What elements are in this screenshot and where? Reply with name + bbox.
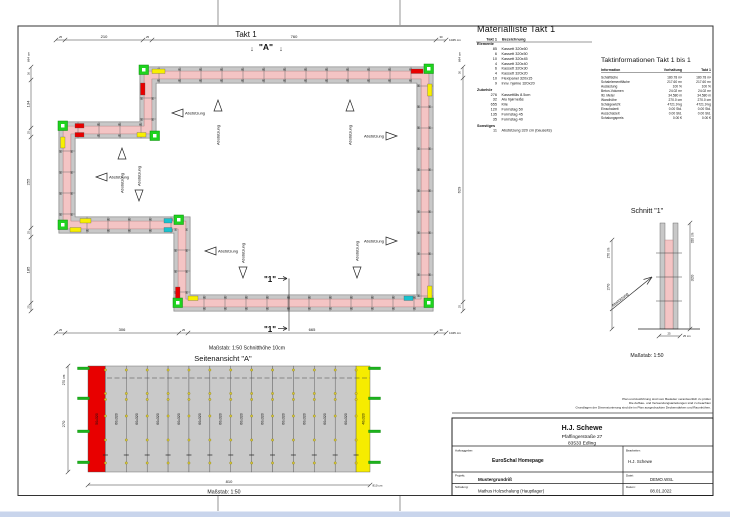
- wedge-lock-dot: [167, 439, 169, 441]
- panel-width-label: 60: [350, 307, 354, 311]
- material-qty: 6: [495, 67, 497, 71]
- corner-element-notch: [61, 124, 65, 128]
- panel-width-label: 60: [220, 67, 224, 71]
- takt-info-vorhaltung-value: 270.0 cm: [668, 98, 682, 102]
- wedge-lock-dot: [250, 398, 252, 400]
- panel-width-label: 60: [203, 295, 207, 299]
- panel-width-label: 60: [139, 97, 143, 101]
- wedge-lock-dot: [146, 415, 148, 417]
- wedge-lock-dot: [292, 398, 294, 400]
- side-view-scale: Maßstab: 1:50: [207, 490, 240, 496]
- tie-rod: [78, 430, 90, 433]
- dim-label: 25: [458, 305, 462, 309]
- panel-width-label: 60: [173, 270, 177, 274]
- panel-width-label: 60: [224, 295, 228, 299]
- panel-width-label: 60: [185, 270, 189, 274]
- material-qty: 120: [491, 108, 497, 112]
- material-item-label: Kassett 320x20: [502, 72, 528, 76]
- panel-width-label: 60: [428, 126, 432, 130]
- support-arrow-left: [172, 109, 183, 117]
- panel-width-label: 60: [185, 291, 189, 295]
- panel-width-label: 60: [346, 67, 350, 71]
- field-value-schalung: Mathus Holzschalung (Hauptlager): [478, 488, 545, 493]
- wedge-lock-dot: [250, 439, 252, 441]
- takt-info-label: lfd. Meter: [601, 93, 616, 97]
- panel-width-label: 60: [58, 150, 62, 154]
- wedge-lock-dot: [271, 369, 273, 371]
- wedge-lock-dot: [230, 398, 232, 400]
- wedge-lock-dot: [146, 439, 148, 441]
- field-label-projekt: Projekt:: [455, 474, 465, 478]
- material-item-label: Kassett 320x40: [502, 62, 528, 66]
- material-item-label: Kassettlås 8.5cm: [502, 93, 531, 97]
- panel-width-label: 60: [283, 67, 287, 71]
- panel-width-label: 60: [308, 295, 312, 299]
- material-col-bezeichnung: Bezeichnung: [502, 38, 526, 42]
- takt-info-vorhaltung-value: 34.580 m: [668, 93, 682, 97]
- company-address-street: Pfaffingerstraße 27: [562, 434, 603, 440]
- material-qty: 135: [491, 112, 497, 116]
- wedge-lock-dot: [313, 398, 315, 400]
- wedge-lock-dot: [209, 398, 211, 400]
- panel-width-label: 60: [58, 213, 62, 217]
- wedge-lock-dot: [209, 369, 211, 371]
- support-label: Abstützung: [610, 291, 629, 307]
- side-panel-label: 60x320: [302, 413, 306, 425]
- panel-width-label: 60: [178, 67, 182, 71]
- material-qty: 10: [493, 77, 497, 81]
- panel-width-label: 60: [350, 295, 354, 299]
- dim-label: 760: [291, 34, 298, 39]
- wedge-lock-dot: [292, 462, 294, 464]
- panel-width-label: 60: [416, 126, 420, 130]
- panel-width-label: 60: [245, 295, 249, 299]
- wedge-lock-dot: [188, 398, 190, 400]
- section-marker-label: "1": [264, 325, 276, 334]
- material-item-label: Kassett 320x60: [502, 47, 528, 51]
- dim-label: 684 cm: [458, 52, 462, 63]
- corner-element-notch: [142, 68, 146, 72]
- support-arrow: [610, 277, 652, 311]
- panel-width-label: 60: [86, 229, 90, 233]
- takt-info-table: Taktinformationen Takt 1 bis 1 Informati…: [601, 57, 712, 120]
- takt-info-label: Schalfläche: [601, 75, 618, 79]
- tie-rod: [78, 367, 90, 370]
- wedge-lock-dot: [230, 415, 232, 417]
- title-block: H.J. Schewe Pfaffingerstraße 27 83533 Ed…: [452, 413, 713, 496]
- accent-panel: [411, 69, 423, 74]
- dim-label: 25: [27, 231, 31, 235]
- dim-label: 270: [61, 420, 66, 427]
- panel-width-label: 60: [58, 192, 62, 196]
- concrete-wall-section: [665, 240, 673, 329]
- plan-scale-note: Maßstab: 1:50 Schnitthöhe 10cm: [209, 346, 285, 352]
- support-label: Abstützung: [355, 241, 360, 261]
- panel-width-label: 60: [185, 249, 189, 253]
- panel-width-label: 60: [428, 168, 432, 172]
- wedge-lock-dot: [334, 369, 336, 371]
- support-arrow-up: [214, 100, 222, 111]
- material-qty: 276: [491, 93, 497, 97]
- material-qty: 4: [495, 72, 497, 76]
- wedge-lock-dot: [188, 462, 190, 464]
- down-arrow-icon: ↓: [279, 46, 283, 53]
- wedge-lock-dot: [209, 439, 211, 441]
- panel-width-label: 60: [416, 147, 420, 151]
- field-label-bearbeiter: Bearbeiter:: [626, 449, 641, 453]
- side-panel-label: 60x320: [281, 413, 285, 425]
- dim-label: 270 cm: [62, 374, 66, 385]
- wedge-lock-dot: [230, 462, 232, 464]
- wedge-lock-dot: [146, 369, 148, 371]
- panel-width-label: 60: [149, 217, 153, 221]
- accent-panel: [152, 69, 165, 74]
- takt-info-col-vorhaltung: Vorhaltung: [664, 68, 682, 72]
- wedge-lock-dot: [209, 392, 211, 394]
- wedge-lock-dot: [292, 392, 294, 394]
- wedge-lock-dot: [334, 415, 336, 417]
- corner-element-notch: [177, 218, 181, 222]
- panel-width-label: 60: [325, 67, 329, 71]
- takt-info-label: Schalelementfläche: [601, 80, 630, 84]
- takt-info-label: Beton-Volumen: [601, 89, 624, 93]
- takt-info-label: Schalgewicht: [601, 102, 621, 106]
- takt-info-vorhaltung-value: 180.78 m²: [667, 75, 683, 79]
- field-label-datum: Datum:: [626, 485, 636, 489]
- wedge-lock-dot: [167, 369, 169, 371]
- panel-width-label: 60: [308, 307, 312, 311]
- euroschal-drawing-sheet: Takt 1 ↓ "A" ↓ 6060606060606060606060606…: [0, 0, 730, 517]
- panel-width-label: 60: [118, 122, 122, 126]
- panel-width-label: 60: [139, 122, 143, 126]
- wedge-lock-dot: [271, 392, 273, 394]
- takt-info-vorhaltung-value: 0.00 €: [673, 116, 682, 120]
- dim-label: 25: [59, 35, 63, 39]
- material-qty: 35: [493, 117, 497, 121]
- takt-info-vorhaltung-value: 4721.9 kg: [668, 102, 683, 106]
- panel-width-label: 60: [151, 118, 155, 122]
- panel-width-label: 60: [416, 105, 420, 109]
- side-view-title: Seitenansicht "A": [194, 354, 252, 363]
- material-qty: 655: [491, 103, 497, 107]
- wedge-lock-dot: [334, 462, 336, 464]
- takt-info-title: Taktinformationen Takt 1 bis 1: [601, 57, 691, 64]
- takt-info-takt1-value: 4721.9 kg: [697, 102, 712, 106]
- wedge-lock-dot: [355, 369, 357, 371]
- material-qty: 6: [495, 52, 497, 56]
- material-section-heading: Sonstiges: [477, 124, 495, 128]
- schnitt-scale: Maßstab: 1:50: [630, 353, 663, 359]
- material-item-label: Kassett 320x45: [502, 57, 528, 61]
- section-marker-label: "1": [264, 275, 276, 284]
- panel-width-label: 60: [97, 134, 101, 138]
- panel-width-label: 60: [428, 210, 432, 214]
- panel-width-label: 60: [428, 252, 432, 256]
- dim-label: 665: [309, 327, 316, 332]
- wedge-lock-dot: [292, 439, 294, 441]
- panel-width-label: 60: [128, 217, 132, 221]
- panel-width-label: 60: [416, 210, 420, 214]
- material-qty: 85: [493, 47, 497, 51]
- panel-width-label: 60: [220, 79, 224, 83]
- panel-width-label: 60: [241, 79, 245, 83]
- support-label: Abstützung: [109, 175, 129, 180]
- dim-label: 25 cm: [683, 334, 691, 338]
- panel-width-label: 60: [428, 273, 432, 277]
- panel-width-label: 60: [416, 231, 420, 235]
- wedge-lock-dot: [271, 398, 273, 400]
- takt-info-takt1-value: 0.00 Std.: [698, 107, 711, 111]
- wedge-lock-dot: [334, 392, 336, 394]
- wedge-lock-dot: [146, 462, 148, 464]
- field-value-bearbeiter: H.J. Schewe: [628, 459, 653, 464]
- takt-info-vorhaltung-value: 100 %: [673, 84, 682, 88]
- panel-width-label: 60: [304, 67, 308, 71]
- field-value-auftraggeber: EuroSchal Homepage: [492, 458, 544, 464]
- wedge-lock-dot: [313, 439, 315, 441]
- material-section-heading: Zubehör: [477, 88, 493, 92]
- accent-panel: [61, 137, 66, 148]
- takt-info-label: Schalungspreis: [601, 116, 624, 120]
- panel-width-label: 60: [325, 79, 329, 83]
- dim-label: 629: [457, 186, 462, 193]
- panel-width-label: 60: [416, 294, 420, 298]
- panel-width-label: 60: [416, 189, 420, 193]
- schnitt-title: Schnitt "1": [631, 208, 664, 215]
- panel-width-label: 60: [58, 171, 62, 175]
- accent-panel: [428, 286, 433, 298]
- dim-label: 30: [439, 328, 443, 332]
- material-qty: 9: [495, 81, 497, 85]
- panel-width-label: 60: [262, 79, 266, 83]
- window-edge-strip: [0, 512, 730, 517]
- formwork-panel: [660, 223, 665, 329]
- panel-width-label: 60: [245, 307, 249, 311]
- panel-width-label: 60: [266, 307, 270, 311]
- dim-label: 255: [26, 178, 31, 185]
- support-label: Abstützung: [216, 125, 221, 145]
- wedge-lock-dot: [167, 415, 169, 417]
- field-value-datum: 08.01.2022: [650, 488, 672, 493]
- corner-element-notch: [427, 67, 431, 71]
- material-section-heading: Elemente: [477, 42, 494, 46]
- material-qty: 32: [493, 98, 497, 102]
- side-panel-label: 60x320: [260, 413, 264, 425]
- panel-width-label: 60: [70, 192, 74, 196]
- dim-label: 25: [146, 35, 150, 39]
- support-arrow-up: [118, 148, 126, 159]
- side-panel-label: 60x320: [344, 413, 348, 425]
- wedge-lock-dot: [271, 415, 273, 417]
- dim-label: 320: [690, 274, 695, 281]
- drawing-sheet-page: Takt 1 ↓ "A" ↓ 6060606060606060606060606…: [0, 0, 730, 517]
- dim-label: 30: [439, 35, 443, 39]
- panel-width-label: 60: [118, 134, 122, 138]
- field-value-projekt: Mustergrundriß: [478, 477, 512, 482]
- support-arrow-up: [346, 100, 354, 111]
- panel-width-label: 60: [283, 79, 287, 83]
- takt-info-takt1-value: 100 %: [702, 84, 711, 88]
- wedge-lock-dot: [230, 439, 232, 441]
- panel-width-label: 60: [107, 229, 111, 233]
- wedge-lock-dot: [355, 415, 357, 417]
- panel-width-label: 60: [416, 168, 420, 172]
- takt-info-col-information: Information: [601, 68, 620, 72]
- panel-width-label: 60: [329, 295, 333, 299]
- wedge-lock-dot: [104, 398, 106, 400]
- company-name: H.J. Schewe: [562, 425, 603, 432]
- wedge-lock-dot: [250, 392, 252, 394]
- material-list: Materialliste Takt 1 Takt 1 Bezeichnung …: [476, 24, 592, 133]
- wedge-lock-dot: [209, 415, 211, 417]
- takt-info-rows: Schalfläche180.78 m²180.78 m²Schalelemen…: [601, 75, 712, 120]
- panel-width-label: 60: [392, 307, 396, 311]
- dim-label: 270 cm: [607, 247, 611, 258]
- wedge-lock-dot: [188, 392, 190, 394]
- takt-info-takt1-value: 0.00 Std.: [698, 111, 711, 115]
- wedge-lock-dot: [104, 392, 106, 394]
- tie-rod: [369, 367, 381, 370]
- dim-label: 25: [182, 328, 186, 332]
- dim-label: 30: [458, 71, 462, 75]
- material-item-label: Abstützung 320 cm (bauseits): [502, 129, 553, 133]
- support-arrow-left: [205, 247, 216, 255]
- support-arrow-down: [239, 267, 247, 278]
- disclaimer: Plan und Ausführung sind vom Bauleiter v…: [575, 397, 711, 409]
- dim-label: 25: [27, 131, 31, 135]
- wedge-lock-dot: [313, 462, 315, 464]
- support-label: Abstützung: [364, 134, 384, 139]
- wedge-lock-dot: [167, 392, 169, 394]
- wedge-lock-dot: [271, 439, 273, 441]
- support-arrow-right: [386, 237, 397, 245]
- dim-label: 210: [101, 34, 108, 39]
- panel-width-label: 60: [413, 307, 417, 311]
- material-qty: 10: [493, 57, 497, 61]
- wedge-lock-dot: [188, 415, 190, 417]
- wedge-lock-dot: [125, 398, 127, 400]
- plan-title: Takt 1: [235, 30, 257, 39]
- wedge-lock-dot: [292, 369, 294, 371]
- wedge-lock-dot: [146, 392, 148, 394]
- panel-width-label: 60: [367, 79, 371, 83]
- field-label-auftraggeber: Auftraggeber:: [455, 449, 473, 453]
- wedge-lock-dot: [125, 439, 127, 441]
- panel-width-label: 60: [428, 147, 432, 151]
- dim-label: 134: [26, 100, 31, 107]
- panel-width-label: 60: [203, 307, 207, 311]
- dim-label: 1045 cm: [449, 331, 461, 335]
- support-label: Abstützung: [185, 111, 205, 116]
- accent-panel: [428, 84, 433, 96]
- panel-width-label: 60: [371, 307, 375, 311]
- panel-width-label: 60: [392, 295, 396, 299]
- panel-width-label: 60: [416, 273, 420, 277]
- accent-panel: [75, 133, 84, 138]
- side-panel-label: 60x320: [114, 413, 118, 425]
- dim-label: 684 cm: [27, 52, 31, 63]
- side-panel-label: 60x320: [219, 413, 223, 425]
- takt-info-takt1-value: 180.78 m²: [696, 75, 712, 79]
- panel-width-label: 60: [416, 84, 420, 88]
- accent-panel: [404, 296, 413, 301]
- panel-width-label: 60: [107, 217, 111, 221]
- takt-info-vorhaltung-value: 0.00 Std.: [669, 111, 682, 115]
- company-address-city: 83533 Edling: [568, 441, 596, 447]
- side-panel-label: 60x320: [240, 413, 244, 425]
- schnitt-view: Schnitt "1" 270 cm 270 320 cm 320 25 25 …: [606, 208, 701, 359]
- panel-width-label: 60: [97, 122, 101, 126]
- support-label: Abstützung: [348, 125, 353, 145]
- material-item-label: Formstag 40: [502, 117, 523, 121]
- wedge-lock-dot: [313, 415, 315, 417]
- tie-rod: [369, 430, 381, 433]
- corner-element-notch: [153, 134, 157, 138]
- tie-rod: [78, 461, 90, 464]
- panel-width-label: 60: [139, 118, 143, 122]
- side-panel-label: 50x320: [95, 413, 99, 425]
- material-item-label: Formstag 50: [502, 108, 523, 112]
- wedge-lock-dot: [271, 462, 273, 464]
- side-panel-label: 60x320: [198, 413, 202, 425]
- takt-info-vorhaltung-value: 0.00 Std.: [669, 107, 682, 111]
- panel-width-label: 60: [70, 171, 74, 175]
- wedge-lock-dot: [355, 392, 357, 394]
- panel-width-label: 60: [70, 213, 74, 217]
- takt-info-takt1-value: 34.580 m: [697, 93, 711, 97]
- wedge-lock-dot: [334, 439, 336, 441]
- takt-info-col-takt1: Takt 1: [701, 68, 711, 72]
- wedge-lock-dot: [334, 398, 336, 400]
- accent-panel: [176, 287, 181, 298]
- panel-width-label: 60: [413, 295, 417, 299]
- wedge-lock-dot: [230, 369, 232, 371]
- wedge-lock-dot: [146, 398, 148, 400]
- support-arrow-down: [353, 267, 361, 278]
- accent-panel: [137, 133, 146, 138]
- accent-panel: [141, 83, 146, 95]
- accent-panel: [164, 228, 172, 233]
- panel-width-label: 60: [346, 79, 350, 83]
- material-item-label: Kile: [502, 103, 508, 107]
- wedge-lock-dot: [230, 392, 232, 394]
- panel-width-label: 60: [371, 295, 375, 299]
- dim-label: 320 cm: [691, 232, 695, 243]
- material-item-label: Innv. hjørne 320x20: [502, 81, 535, 85]
- panel-width-label: 60: [388, 67, 392, 71]
- support-arrow-down: [135, 190, 143, 201]
- takt-info-label: Ausschalzeit: [601, 111, 620, 115]
- panel-width-label: 60: [416, 252, 420, 256]
- tie-rod: [369, 397, 381, 400]
- wedge-lock-dot: [250, 415, 252, 417]
- takt-info-label: Auslastung: [601, 84, 617, 88]
- wedge-lock-dot: [167, 462, 169, 464]
- material-list-title: Materialliste Takt 1: [477, 24, 555, 34]
- wedge-lock-dot: [104, 462, 106, 464]
- side-panel-label: 60x320: [177, 413, 181, 425]
- panel-width-label: 60: [224, 307, 228, 311]
- wedge-lock-dot: [313, 392, 315, 394]
- dim-label: 25: [667, 332, 671, 336]
- dim-label: 36: [27, 72, 31, 76]
- material-qty: 4: [495, 62, 497, 66]
- wedge-lock-dot: [209, 462, 211, 464]
- field-value-datei: DEMO.WSL: [650, 477, 674, 482]
- panel-width-label: 60: [428, 189, 432, 193]
- material-qty: 11: [493, 129, 497, 133]
- tie-rod: [369, 461, 381, 464]
